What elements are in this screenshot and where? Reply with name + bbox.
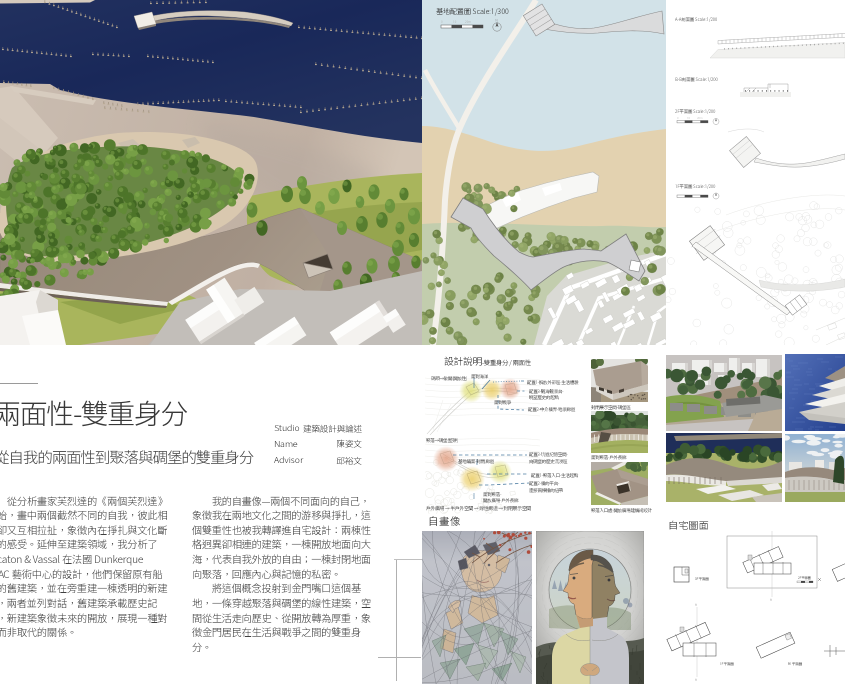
svg-text:A: A (695, 603, 697, 607)
svg-text:A-A剖面圖 Scale:1/200: A-A剖面圖 Scale:1/200 (675, 16, 718, 22)
svg-text:N: N (496, 19, 498, 23)
svg-text:A: A (695, 678, 697, 682)
svg-text:A: A (770, 598, 772, 602)
svg-text:B-B剖面圖 Scale:1/200: B-B剖面圖 Scale:1/200 (675, 76, 719, 82)
svg-text:10: 10 (453, 20, 457, 24)
svg-text:1F平面圖: 1F平面圖 (719, 662, 734, 666)
svg-text:0: 0 (441, 20, 443, 24)
svg-text:基地配置圖 Scale:1/300: 基地配置圖 Scale:1/300 (436, 7, 509, 16)
svg-text:3F平面圖: 3F平面圖 (695, 577, 709, 581)
svg-text:10: 10 (687, 116, 690, 120)
svg-text:2F平面圖: 2F平面圖 (798, 576, 811, 580)
svg-text:B1平面圖: B1平面圖 (788, 662, 803, 666)
svg-text:1F平面圖 Scale:1/200: 1F平面圖 Scale:1/200 (675, 184, 716, 189)
svg-text:2F平面圖 Scale:1/200: 2F平面圖 Scale:1/200 (675, 109, 716, 114)
svg-text:20m: 20m (697, 116, 703, 120)
svg-text:20m: 20m (465, 20, 471, 24)
